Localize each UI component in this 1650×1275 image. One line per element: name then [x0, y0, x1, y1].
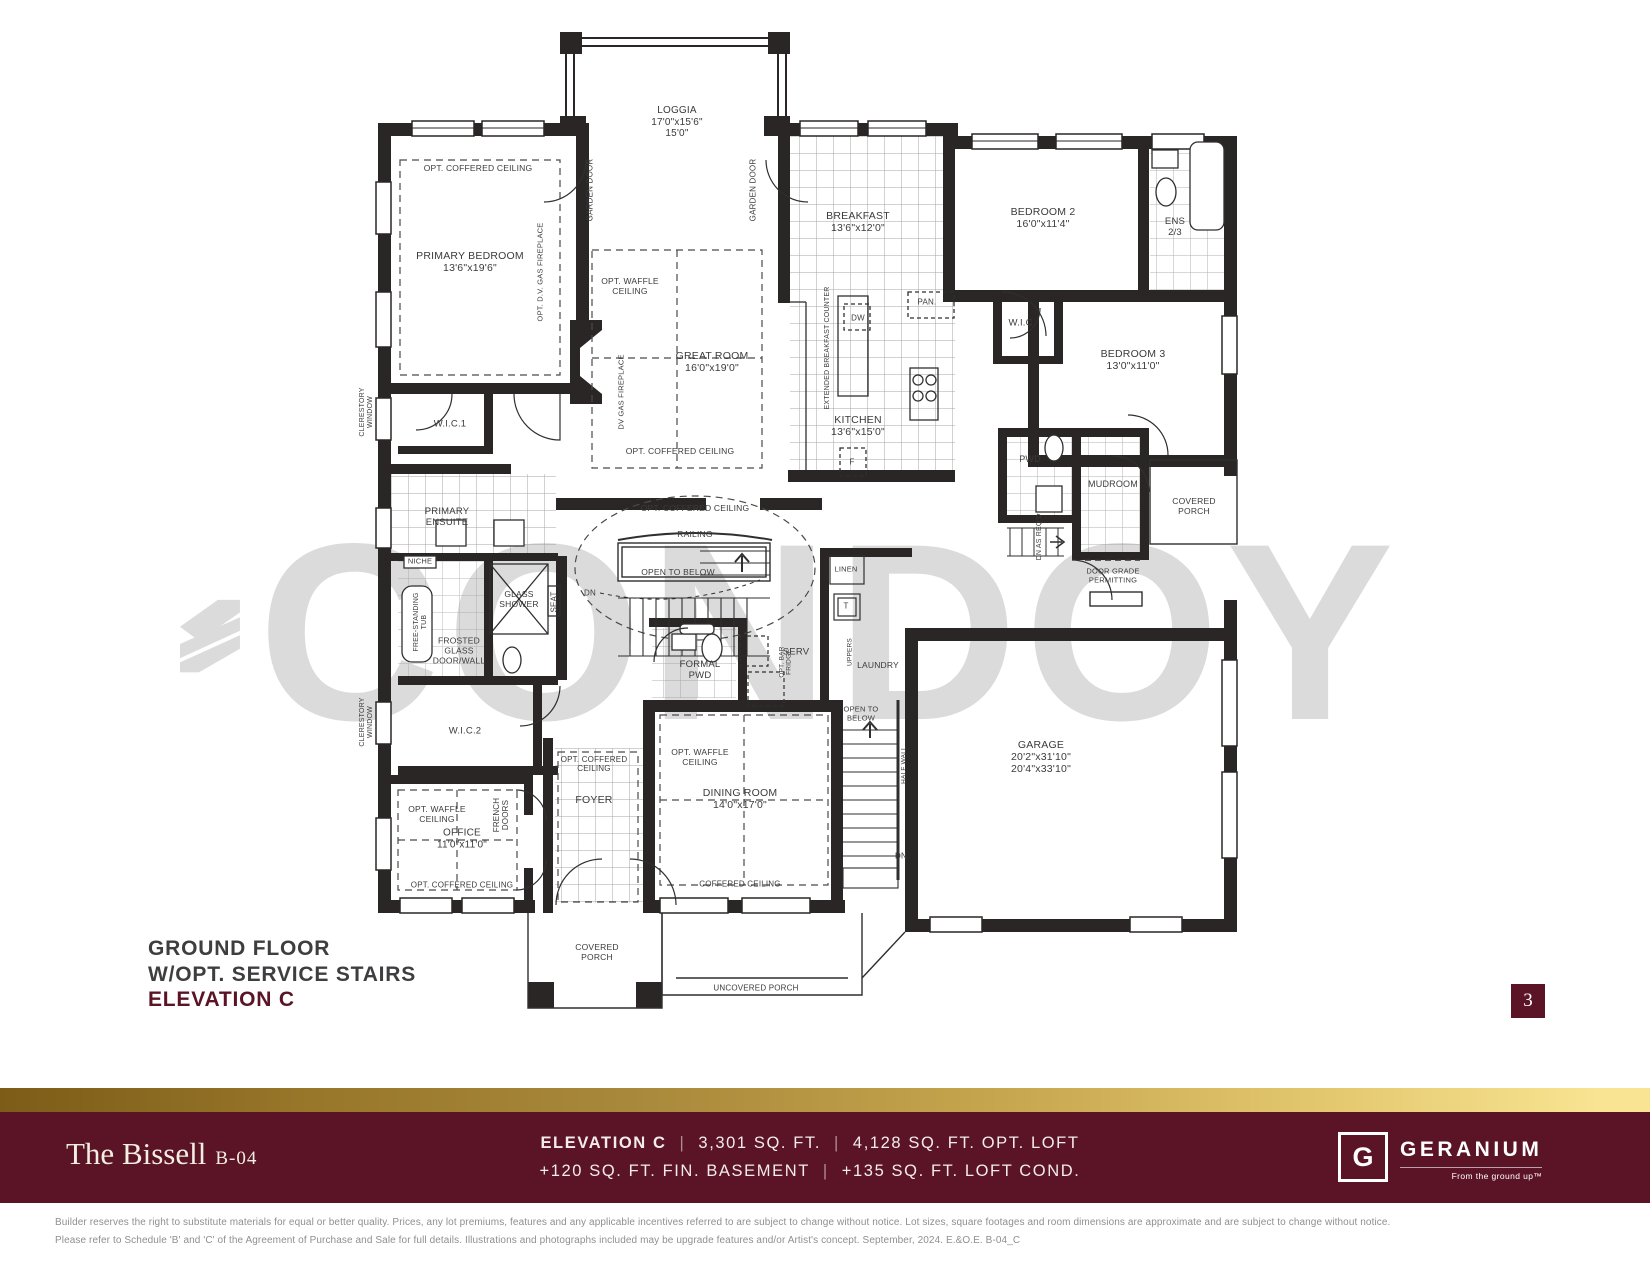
plan-label-covered-porch-right: COVERED PORCH [1172, 497, 1215, 517]
disclaimer: Builder reserves the right to substitute… [55, 1214, 1600, 1250]
spec-sqft: 3,301 SQ. FT. [698, 1134, 821, 1152]
plan-label-tub: FREE-STANDING TUB [413, 592, 429, 651]
plan-label-loggia: LOGGIA 17'0"x15'6" 15'0" [651, 105, 703, 140]
plan-label-primary-bedroom: PRIMARY BEDROOM 13'6"x19'6" [416, 250, 524, 274]
gold-accent-bar [0, 1088, 1650, 1112]
footer-bar: The BissellB-04 ELEVATION C|3,301 SQ. FT… [0, 1112, 1650, 1203]
spec-loft-cond: +135 SQ. FT. LOFT COND. [842, 1162, 1081, 1180]
title-option: W/OPT. SERVICE STAIRS [148, 962, 416, 988]
plan-label-laundry: LAUNDRY [857, 661, 899, 671]
plan-label-primary-coffered: OPT. COFFERED CEILING [424, 164, 533, 174]
plan-label-pan: PAN. [918, 297, 937, 306]
plan-label-center-coffered: OPT. COFFERED CEILING [641, 504, 750, 514]
plan-label-office-waffle: OPT. WAFFLE CEILING [408, 805, 466, 825]
plan-label-glass-shower: GLASS SHOWER [499, 590, 538, 610]
title-elevation: ELEVATION C [148, 987, 416, 1013]
plan-label-clerestory-1: CLERESTORY WINDOW [359, 387, 375, 436]
plan-label-dn-serv: DN [895, 851, 907, 860]
plan-label-covered-porch-bottom: COVERED PORCH [575, 943, 618, 963]
plan-label-fridge: F [849, 457, 854, 466]
plan-label-bedroom2: BEDROOM 2 16'0"x11'4" [1011, 206, 1076, 230]
plan-label-uncovered-porch: UNCOVERED PORCH [713, 983, 798, 992]
plan-label-garden-door-right: GARDEN DOOR [748, 159, 757, 222]
plan-label-dining-coffered: COFFERED CEILING [699, 879, 780, 888]
floor-plan-sheet: CONDOY [0, 0, 1650, 1275]
plan-label-foyer-coffered: OPT. COFFERED CEILING [561, 755, 628, 773]
plan-label-wic2: W.I.C.2 [449, 727, 482, 738]
plan-label-office-coffered: OPT. COFFERED CEILING [411, 880, 513, 889]
plan-label-half-wall: HALF WALL [900, 746, 907, 784]
plan-label-t-closet: T [843, 601, 848, 610]
disclaimer-line1: Builder reserves the right to substitute… [55, 1214, 1600, 1232]
plan-label-bedroom3: BEDROOM 3 13'0"x11'0" [1101, 348, 1166, 372]
model-title: The BissellB-04 [66, 1136, 257, 1172]
brand-logo: G GERANIUM From the ground up™ [1338, 1132, 1542, 1182]
plan-label-primary-ensuite: PRIMARY ENSUITE [425, 507, 470, 529]
plan-label-seat: SEAT [549, 591, 558, 612]
plan-label-pwd: PWD [1019, 454, 1041, 464]
spec-basement: +120 SQ. FT. FIN. BASEMENT [540, 1162, 810, 1180]
plan-label-wic-bed2: W.I.C. [1008, 319, 1035, 330]
plan-label-clerestory-2: CLERESTORY WINDOW [359, 697, 375, 746]
plan-label-great-room: GREAT ROOM 16'0"x19'0" [676, 350, 749, 374]
plan-label-niche: NICHE [408, 558, 432, 567]
disclaimer-line2: Please refer to Schedule 'B' and 'C' of … [55, 1232, 1600, 1250]
page-number-badge: 3 [1511, 984, 1545, 1018]
plan-label-linen: LINEN [834, 566, 857, 575]
brand-text: GERANIUM From the ground up™ [1400, 1132, 1542, 1181]
spec-elevation: ELEVATION C [540, 1134, 666, 1152]
plan-label-french-doors: FRENCH DOORS [492, 798, 510, 833]
plan-label-dining-waffle: OPT. WAFFLE CEILING [671, 748, 729, 768]
plan-label-mudroom: MUDROOM [1088, 479, 1138, 489]
title-block: GROUND FLOOR W/OPT. SERVICE STAIRS ELEVA… [148, 936, 416, 1013]
plan-label-door-grade: DOOR GRADE PERMITTING [1086, 567, 1139, 584]
brand-tagline: From the ground up™ [1400, 1167, 1542, 1181]
model-code: B-04 [215, 1148, 257, 1169]
footer-specs-line1: ELEVATION C|3,301 SQ. FT.|4,128 SQ. FT. … [540, 1134, 1079, 1153]
brand-name: GERANIUM [1400, 1138, 1542, 1162]
plan-label-breakfast: BREAKFAST 13'6"x12'0" [826, 210, 890, 234]
plan-label-primary-fireplace: OPT. D.V. GAS FIREPLACE [537, 223, 546, 322]
plan-label-bar-fridge: OPT. BAR FRIDGE [779, 646, 794, 677]
footer-specs: ELEVATION C|3,301 SQ. FT.|4,128 SQ. FT. … [330, 1112, 1290, 1203]
plan-label-greatroom-coffered: OPT. COFFERED CEILING [626, 447, 735, 457]
geranium-logo-icon: G [1338, 1132, 1388, 1182]
footer-specs-line2: +120 SQ. FT. FIN. BASEMENT|+135 SQ. FT. … [540, 1162, 1081, 1181]
plan-label-dv-fireplace: DV GAS FIREPLACE [618, 354, 627, 429]
plan-label-dn-as-reqd: DN AS REQ'D [1036, 514, 1044, 561]
plan-label-open-below-main: OPEN TO BELOW [641, 568, 715, 578]
plan-label-wic1: W.I.C.1 [434, 420, 467, 431]
plan-label-foyer: FOYER [575, 794, 612, 806]
plan-label-uppers: UPPERS [846, 638, 853, 666]
plan-label-kitchen: KITCHEN 13'6"x15'0" [831, 414, 885, 438]
spec-divider: | [821, 1134, 853, 1152]
plan-label-greatroom-waffle: OPT. WAFFLE CEILING [601, 277, 659, 297]
plan-label-frosted-glass: FROSTED GLASS DOOR/WALL [433, 636, 486, 665]
plan-label-railing: RAILING [677, 530, 712, 540]
plan-label-dw: DW [851, 313, 865, 322]
plan-label-dn-main: DN [584, 588, 596, 597]
spec-divider: | [667, 1134, 699, 1152]
plan-label-garage: GARAGE 20'2"x31'10" 20'4"x33'10" [1011, 739, 1071, 775]
plan-label-garden-door-left: GARDEN DOOR [585, 159, 594, 222]
plan-label-open-below-serv: OPEN TO BELOW [844, 705, 879, 722]
title-floor: GROUND FLOOR [148, 936, 416, 962]
spec-opt-loft: 4,128 SQ. FT. OPT. LOFT [853, 1134, 1080, 1152]
plan-label-ens: ENS 2/3 [1165, 217, 1185, 239]
plan-labels-layer: LOGGIA 17'0"x15'6" 15'0"GARDEN DOORGARDE… [0, 0, 1650, 1275]
plan-label-dining-room: DINING ROOM 14'0"x17'0" [703, 787, 778, 811]
spec-divider: | [810, 1162, 842, 1180]
plan-label-office: OFFICE 11'0"x11'0" [437, 828, 487, 851]
plan-label-formal-pwd: FORMAL PWD [680, 660, 721, 682]
model-name: The Bissell [66, 1136, 206, 1171]
plan-label-breakfast-counter: EXTENDED BREAKFAST COUNTER [824, 287, 832, 410]
